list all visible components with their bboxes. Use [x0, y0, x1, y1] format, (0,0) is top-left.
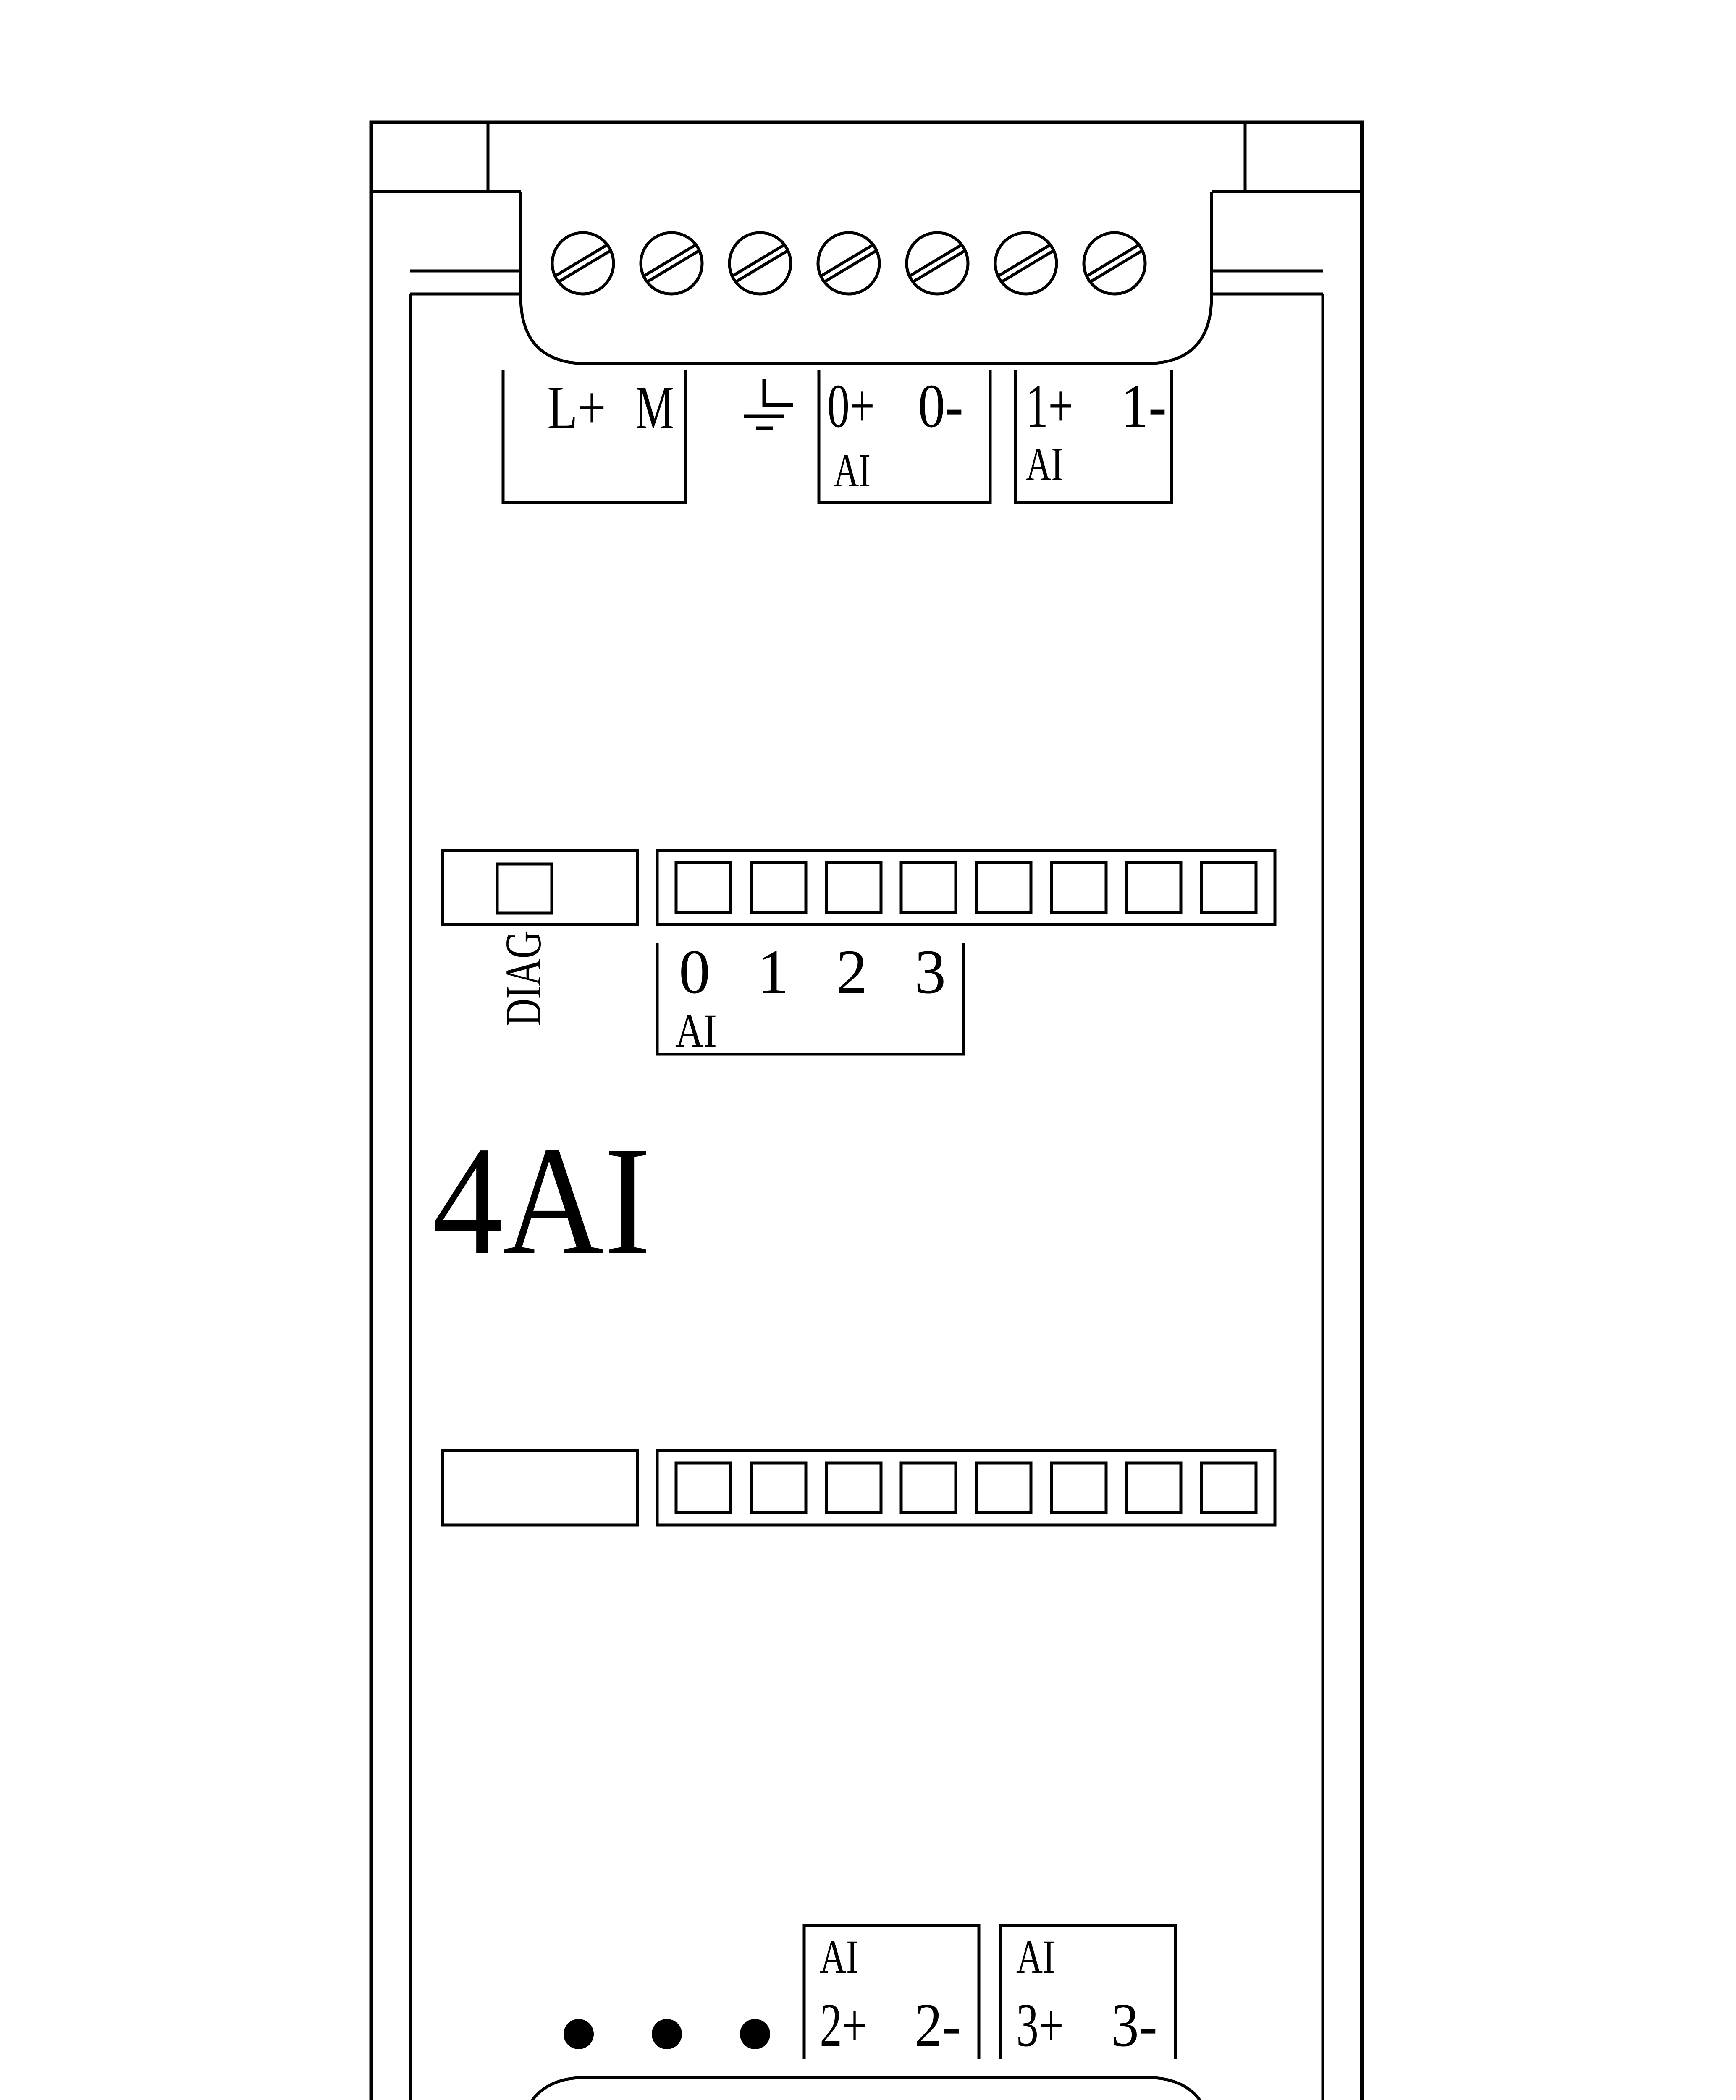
channel-led-row-1 — [657, 850, 1275, 924]
channel-number-3: 3 — [915, 937, 946, 1007]
channel0-type-label: AI — [834, 444, 871, 497]
screw-terminal-icon — [641, 233, 702, 294]
channel-number-1: 1 — [758, 937, 789, 1007]
channel3-type-label: AI — [1016, 1931, 1055, 1983]
screw-terminal-icon — [552, 233, 614, 294]
terminal-label-3-plus: 3+ — [1016, 1991, 1064, 2060]
terminal-label-m: M — [635, 373, 674, 442]
channel-led-icon — [1201, 863, 1256, 912]
terminal-label-2-plus: 2+ — [820, 1991, 867, 2060]
terminal-label-0-minus: 0- — [918, 372, 963, 441]
channel-led-icon — [1052, 863, 1106, 912]
plc-4ai-module-wiring-diagram: L+ M 0+ 0- AI 1+ 1- AI DIAG 0 1 2 3 AI 4… — [0, 0, 1736, 2100]
screw-terminal-icon — [818, 233, 879, 294]
earth-ground-icon — [744, 379, 793, 428]
channel-led-icon — [676, 1463, 731, 1512]
channel-led-row-2 — [657, 1450, 1275, 1525]
channel2-type-label: AI — [820, 1931, 858, 1983]
terminal-label-1-plus: 1+ — [1026, 372, 1073, 441]
ellipsis-dot-icon — [564, 2019, 594, 2049]
channel-led-icon — [1126, 863, 1181, 912]
screw-terminal-icon — [995, 233, 1057, 294]
channel-number-2: 2 — [836, 937, 868, 1007]
blank-led-box — [443, 1450, 637, 1525]
channel-number-0: 0 — [679, 937, 711, 1007]
terminal-label-2-minus: 2- — [915, 1991, 961, 2060]
ellipsis-dots — [564, 2019, 770, 2049]
corner-tab-top-left — [371, 122, 521, 192]
top-terminal-screws — [552, 233, 1145, 294]
channel-led-icon — [1201, 1463, 1256, 1512]
module-model-label: 4AI — [433, 1115, 651, 1287]
corner-tab-top-right — [1212, 122, 1362, 192]
terminal-label-l-plus: L+ — [547, 373, 606, 442]
channel-led-icon — [826, 863, 881, 912]
diag-label: DIAG — [495, 931, 552, 1026]
channel-led-icon — [1052, 1463, 1106, 1512]
terminal-label-3-minus: 3- — [1111, 1991, 1157, 2060]
terminal-recess-bottom — [521, 2077, 1212, 2100]
terminal-recess-top — [521, 192, 1212, 364]
diag-led-icon — [497, 864, 552, 913]
screw-terminal-icon — [907, 233, 968, 294]
channel-led-icon — [751, 863, 806, 912]
terminal-label-0-plus: 0+ — [827, 372, 875, 441]
channel-led-icon — [976, 1463, 1031, 1512]
channel-number-type-label: AI — [675, 1005, 717, 1057]
channel-led-icon — [1126, 1463, 1181, 1512]
channel-led-icon — [901, 863, 956, 912]
channel-led-icon — [751, 1463, 806, 1512]
screw-terminal-icon — [1084, 233, 1145, 294]
channel-led-icon — [676, 863, 731, 912]
channel1-type-label: AI — [1026, 438, 1063, 491]
side-groove-top-right — [1212, 271, 1323, 294]
screw-terminal-icon — [729, 233, 791, 294]
ellipsis-dot-icon — [652, 2019, 682, 2049]
channel-led-icon — [826, 1463, 881, 1512]
ellipsis-dot-icon — [740, 2019, 770, 2049]
terminal-label-1-minus: 1- — [1121, 372, 1167, 441]
channel-led-icon — [901, 1463, 956, 1512]
channel-led-icon — [976, 863, 1031, 912]
side-groove-top-left — [410, 271, 521, 294]
